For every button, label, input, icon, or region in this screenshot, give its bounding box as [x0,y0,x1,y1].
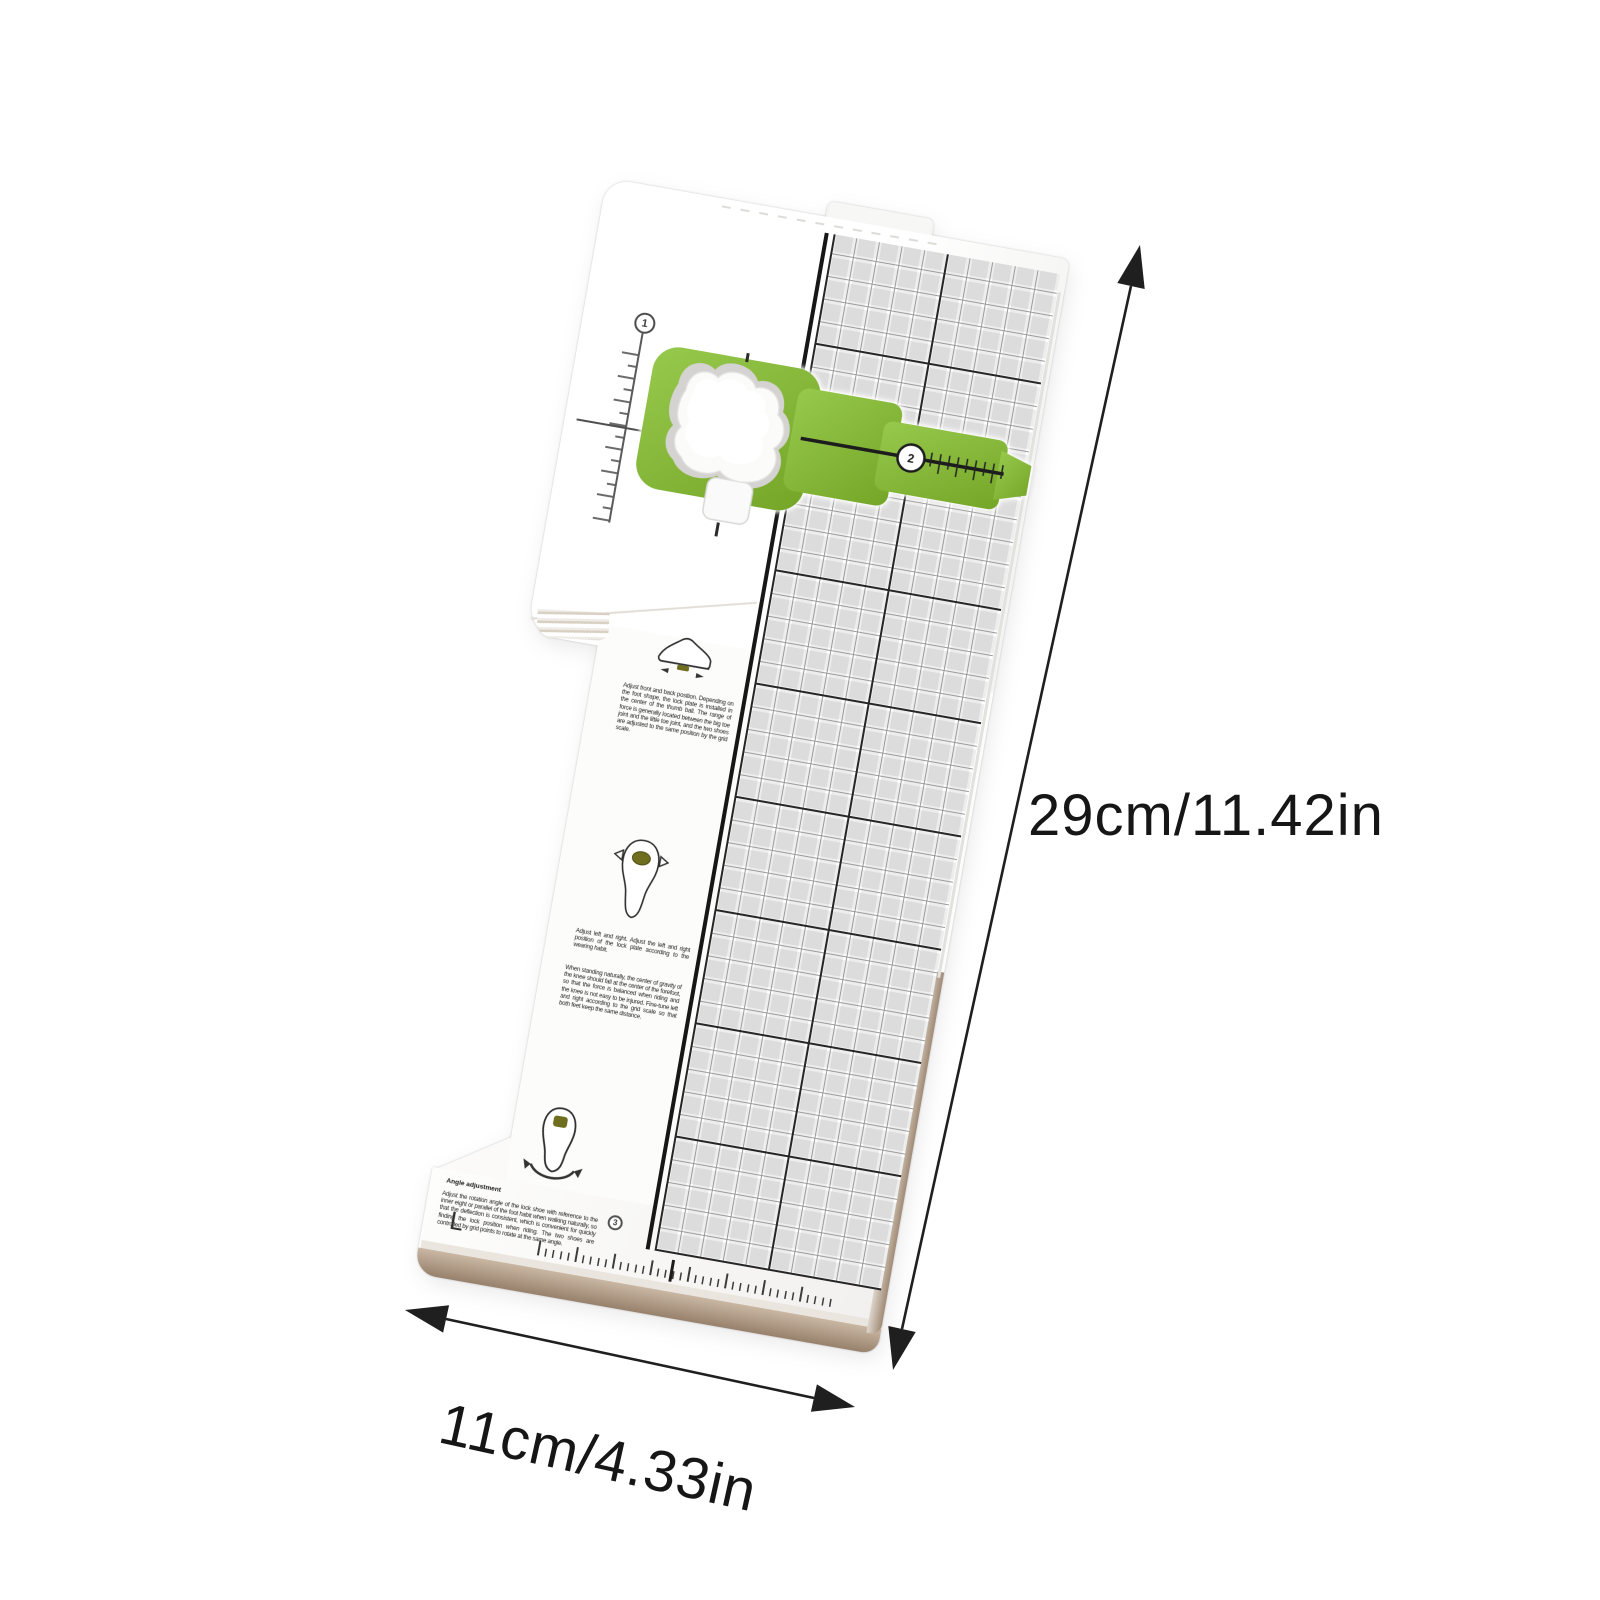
marker-1-digit: 1 [641,317,649,330]
cleat-foot-tab [701,476,754,525]
cleat-alignment-board: 1 2 Adjus [414,178,1070,1355]
centerline-bottom-tick [714,522,719,536]
marker-3-digit: 3 [612,1218,618,1228]
height-dimension-label: 29cm/11.42in [1028,782,1384,849]
height-arrow-top [1117,245,1144,289]
width-arrow-right [811,1384,855,1411]
height-arrow-bottom [888,1326,915,1370]
width-dimension-label: 11cm/4.33in [433,1390,763,1525]
width-arrow-left [405,1305,449,1332]
product-photo-page: { "scene": {"background_color": "#ffffff… [0,0,1600,1600]
board-sheet-stack-edge [536,609,609,641]
